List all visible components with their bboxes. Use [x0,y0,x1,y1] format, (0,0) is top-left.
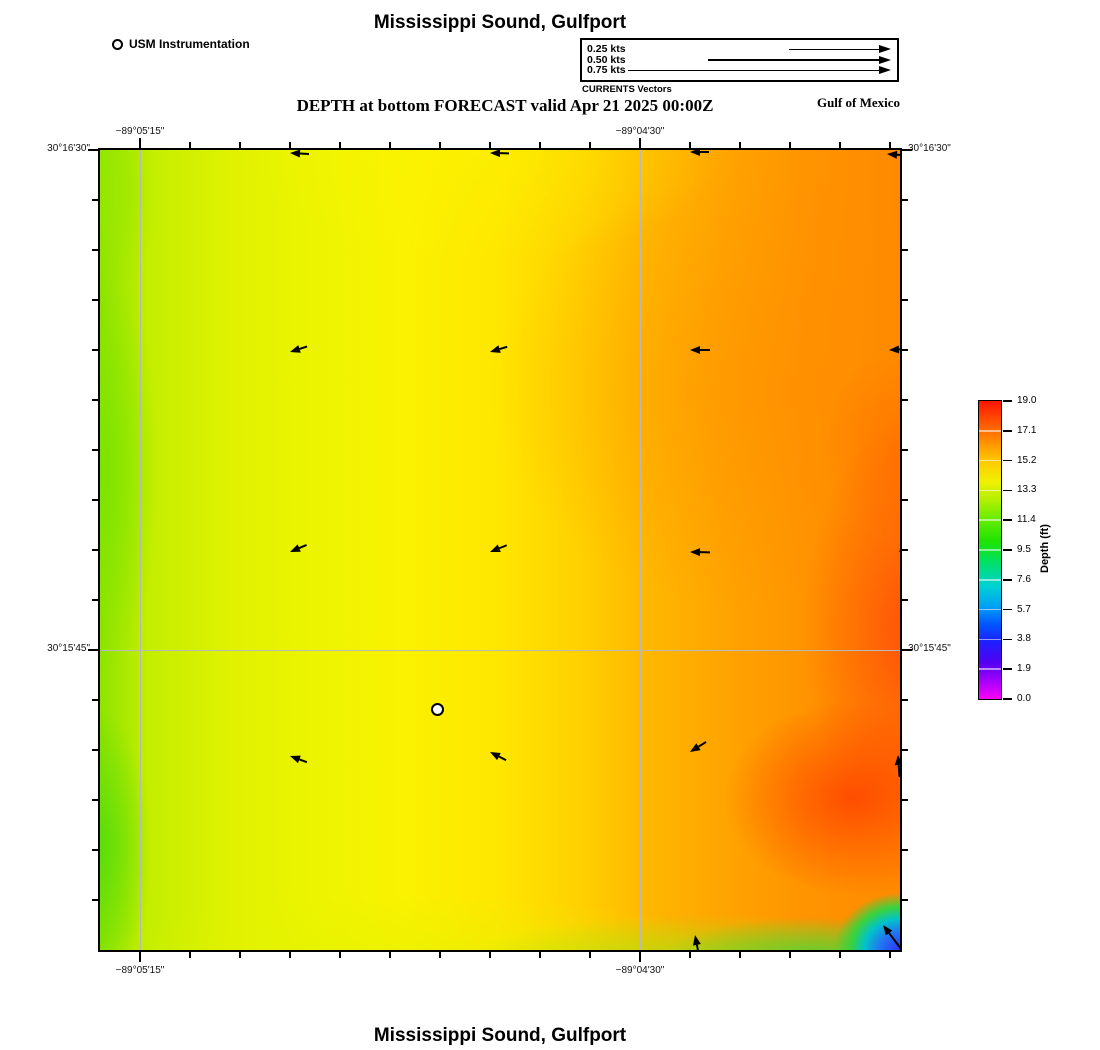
figure-title: Mississippi Sound, Gulfport [100,12,900,34]
vector-tail [700,551,710,553]
axis-tick [439,952,441,958]
current-vector-arrow [288,751,308,767]
colorbar-tick [1003,549,1012,551]
axis-tick [689,142,691,148]
vector-head-icon [288,752,300,763]
vector-head-icon [489,346,501,357]
colorbar-tick [1003,400,1012,402]
currents-legend-entry-label: 0.25 kts [587,44,626,54]
axis-label-lat-right-1: 30°16'30" [908,143,998,154]
vector-tail [696,944,700,950]
vector-tail [299,544,307,549]
current-vector-arrow [687,738,708,757]
gridline-horizontal [100,650,900,651]
vector-head-icon [488,749,501,761]
axis-tick [139,952,141,962]
vector-tail [698,742,706,748]
vector-head-icon [894,755,900,766]
colorbar-tick [1003,490,1012,492]
colorbar-tick-label: 5.7 [1017,604,1031,615]
vector-head-icon [887,151,898,160]
colorbar-separator [979,668,1001,670]
vector-tail [499,545,507,549]
axis-tick [189,952,191,958]
axis-tick [92,349,98,351]
vector-tail [708,59,879,61]
colorbar-separator [979,549,1001,551]
current-vector-arrow [789,45,891,55]
axis-tick [489,142,491,148]
axis-tick [902,449,908,451]
axis-tick [92,799,98,801]
current-vector-arrow [628,66,891,76]
colorbar-tick [1003,460,1012,462]
axis-tick [92,299,98,301]
axis-tick [239,952,241,958]
axis-tick [789,952,791,958]
axis-tick [539,952,541,958]
colorbar-tick-label: 15.2 [1017,455,1036,466]
axis-tick [639,138,641,148]
current-vector-arrow [887,150,900,160]
axis-tick [689,952,691,958]
current-vector-arrow [488,541,508,557]
axis-tick [902,899,908,901]
current-vector-arrow [290,150,309,159]
axis-tick [289,952,291,958]
axis-tick [902,349,908,351]
current-vector-arrow [690,547,710,557]
axis-tick [539,142,541,148]
axis-tick [389,952,391,958]
axis-tick [839,142,841,148]
vector-tail [789,49,879,51]
axis-tick [902,549,908,551]
axis-label-lon-top-2: −89°04'30" [580,126,700,137]
current-vector-arrow [879,922,900,950]
colorbar-separator [979,430,1001,432]
axis-label-lon-top-1: −89°05'15" [80,126,200,137]
current-vector-arrow [490,150,509,159]
colorbar: 19.017.115.213.311.49.57.65.73.81.90.0 [978,400,1002,700]
axis-tick [902,499,908,501]
vector-tail [499,346,507,350]
axis-tick [139,138,141,148]
colorbar-tick [1003,519,1012,521]
colorbar-tick-label: 0.0 [1017,693,1031,704]
axis-tick [88,149,98,151]
axis-tick [639,952,641,962]
colorbar-tick-label: 9.5 [1017,544,1031,555]
axis-tick [189,142,191,148]
axis-tick [902,649,912,651]
axis-tick [92,199,98,201]
currents-legend-box: 0.25 kts 0.50 kts 0.75 kts [580,38,899,82]
current-vector-arrow [893,755,900,778]
colorbar-tick [1003,639,1012,641]
axis-label-lon-bottom-2: −89°04'30" [580,965,700,976]
axis-tick [902,849,908,851]
current-vector-arrow [288,342,308,357]
vector-tail [299,346,307,350]
vector-head-icon [879,45,891,53]
vector-head-icon [897,543,900,555]
gridline-vertical [640,150,641,950]
currents-legend-caption: CURRENTS Vectors [582,84,672,95]
currents-legend-entry-label: 0.50 kts [587,55,626,65]
axis-tick [289,142,291,148]
colorbar-separator [979,519,1001,521]
vector-tail [889,933,900,950]
vector-tail [628,70,879,72]
axis-tick [902,599,908,601]
current-vector-arrow [708,55,891,65]
colorbar-tick-label: 17.1 [1017,425,1036,436]
colorbar-tick [1003,609,1012,611]
axis-tick [902,199,908,201]
figure-title-bottom: Mississippi Sound, Gulfport [100,1025,900,1047]
forecast-figure: Mississippi Sound, Gulfport USM Instrume… [0,0,1100,1050]
axis-tick [389,142,391,148]
colorbar-tick-label: 19.0 [1017,395,1036,406]
axis-tick [902,699,908,701]
map-canvas [100,150,900,950]
axis-tick [92,449,98,451]
colorbar-axis-label: Depth (ft) [1036,400,1054,698]
current-vector-arrow [690,345,710,355]
vector-head-icon [690,549,700,557]
axis-tick [92,499,98,501]
axis-tick [889,142,891,148]
gridline-vertical [140,150,141,950]
colorbar-tick-label: 11.4 [1017,514,1036,525]
axis-label-lat-left-2: 30°15'45" [0,643,90,654]
axis-label-lon-bottom-1: −89°05'15" [80,965,200,976]
axis-tick [889,952,891,958]
vector-head-icon [879,66,891,74]
colorbar-tick [1003,430,1012,432]
instrumentation-legend-label: USM Instrumentation [129,37,250,51]
axis-tick [239,142,241,148]
axis-tick [902,749,908,751]
axis-tick [902,249,908,251]
map-frame: −89°05'15" −89°04'30" −89°05'15" −89°04'… [98,148,902,952]
axis-tick [902,299,908,301]
axis-tick [489,952,491,958]
colorbar-separator [979,490,1001,492]
vector-head-icon [691,934,701,945]
axis-tick [902,149,912,151]
figure-subtitle: DEPTH at bottom FORECAST valid Apr 21 20… [100,96,910,116]
vector-tail [897,154,900,156]
current-vector-arrow [489,342,509,357]
axis-tick [739,952,741,958]
axis-tick [339,142,341,148]
axis-tick [839,952,841,958]
vector-head-icon [289,346,301,357]
vector-tail [700,349,710,351]
axis-tick [902,799,908,801]
axis-tick [92,899,98,901]
axis-tick [92,849,98,851]
vector-head-icon [879,56,891,64]
current-vector-arrow [288,540,308,556]
vector-tail [500,153,509,155]
axis-tick [92,699,98,701]
colorbar-separator [979,639,1001,641]
vector-tail [299,758,307,762]
colorbar-separator [979,460,1001,462]
station-marker [431,703,444,716]
axis-tick [92,399,98,401]
current-vector-arrow [889,344,900,355]
vector-head-icon [690,150,700,157]
axis-tick [789,142,791,148]
vector-head-icon [690,347,700,355]
axis-tick [902,399,908,401]
axis-tick [92,549,98,551]
currents-legend-entry-label: 0.75 kts [587,65,626,75]
vector-tail [300,153,309,155]
colorbar-tick-label: 1.9 [1017,663,1031,674]
vector-tail [898,765,900,777]
axis-tick [88,649,98,651]
colorbar-separator [979,609,1001,611]
vector-head-icon [490,150,500,158]
instrumentation-legend: USM Instrumentation [112,37,250,51]
axis-tick [739,142,741,148]
axis-tick [92,749,98,751]
vector-tail [499,756,507,761]
current-vector-arrow [690,934,704,950]
axis-tick [589,142,591,148]
axis-tick [439,142,441,148]
current-vector-arrow [690,150,709,157]
colorbar-tick-label: 13.3 [1017,484,1036,495]
current-vector-arrow [488,748,509,765]
axis-tick [589,952,591,958]
open-circle-marker-icon [112,39,123,50]
vector-head-icon [889,346,899,355]
vector-tail [700,152,709,154]
vector-head-icon [290,150,300,158]
colorbar-tick [1003,698,1012,700]
axis-tick [92,249,98,251]
current-vector-arrow [896,537,900,557]
axis-label-lat-left-1: 30°16'30" [0,143,90,154]
colorbar-tick-label: 3.8 [1017,633,1031,644]
colorbar-tick [1003,579,1012,581]
colorbar-tick [1003,668,1012,670]
colorbar-tick-label: 7.6 [1017,574,1031,585]
colorbar-separator [979,579,1001,581]
vector-tail [899,349,900,351]
axis-tick [339,952,341,958]
axis-tick [92,599,98,601]
